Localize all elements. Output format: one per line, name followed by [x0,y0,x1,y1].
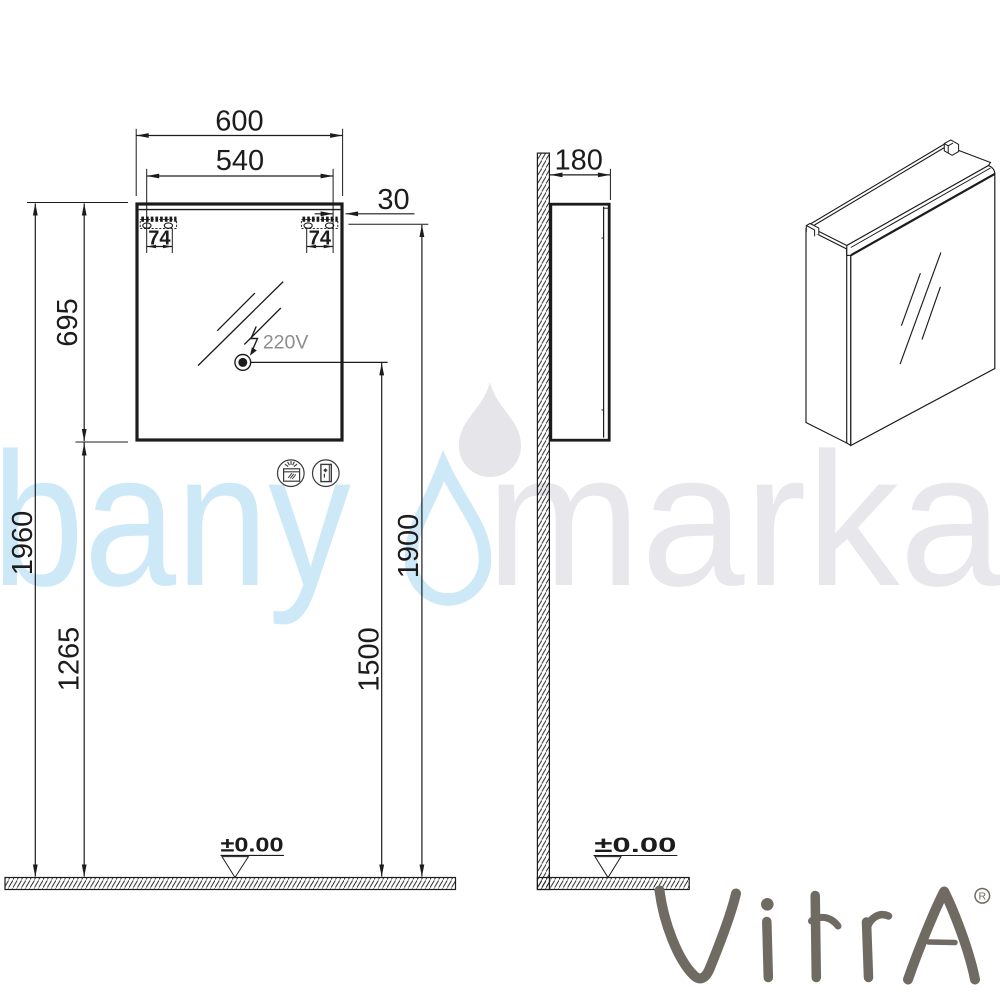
svg-text:30: 30 [377,184,409,216]
svg-text:marka: marka [486,414,1000,626]
svg-text:1265: 1265 [54,627,86,692]
svg-text:1960: 1960 [7,511,39,576]
svg-text:180: 180 [555,145,603,177]
svg-text:1500: 1500 [354,627,386,692]
svg-text:695: 695 [52,298,84,346]
svg-text:540: 540 [216,145,264,177]
svg-text:220V: 220V [263,331,309,353]
svg-text:74: 74 [309,228,332,250]
svg-text:±0.00: ±0.00 [221,834,284,857]
svg-text:R: R [979,891,987,903]
svg-text:bany: bany [0,414,351,626]
svg-text:600: 600 [215,106,263,138]
svg-text:±0.00: ±0.00 [594,834,676,857]
svg-text:1900: 1900 [393,514,425,579]
svg-text:74: 74 [148,228,171,250]
